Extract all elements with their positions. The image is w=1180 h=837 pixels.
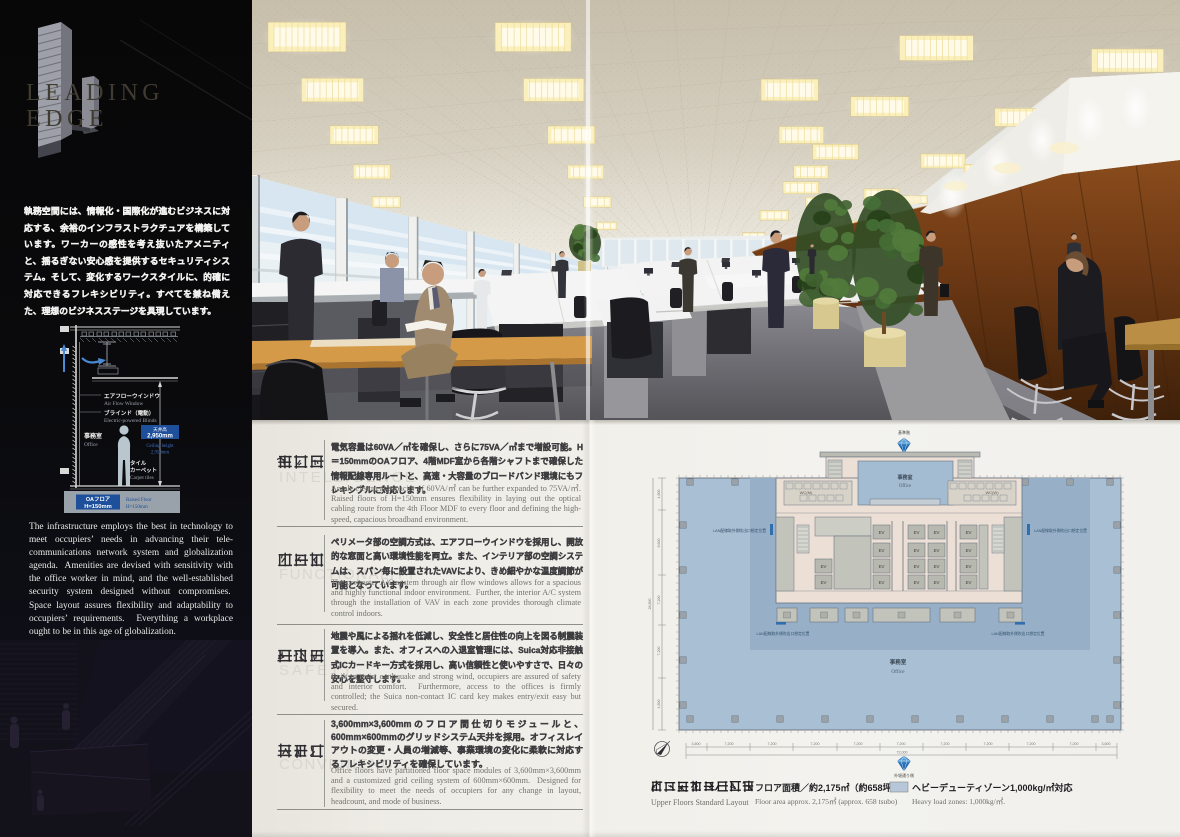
svg-text:7,200: 7,200 [657, 596, 661, 605]
svg-text:3,600: 3,600 [1102, 742, 1111, 746]
svg-text:Floor area approx. 2,175㎡ (app: Floor area approx. 2,175㎡ (approx. 658 t… [755, 797, 898, 806]
svg-text:7,200: 7,200 [811, 742, 820, 746]
svg-text:3,600: 3,600 [692, 742, 701, 746]
svg-text:7,200: 7,200 [725, 742, 734, 746]
svg-text:Office: Office [899, 484, 911, 489]
svg-text:EV: EV [879, 580, 885, 585]
svg-text:Electric-powered Blinds: Electric-powered Blinds [104, 418, 157, 424]
svg-text:事務室: 事務室 [897, 474, 912, 481]
svg-text:7,200: 7,200 [984, 742, 993, 746]
svg-text:Office: Office [891, 668, 905, 675]
svg-text:Heavy load zones: 1,000kg/㎡.: Heavy load zones: 1,000kg/㎡. [912, 797, 1005, 806]
svg-text:EV: EV [879, 530, 885, 535]
svg-text:EV: EV [914, 580, 920, 585]
svg-text:事務室: 事務室 [84, 432, 102, 440]
svg-text:カーペット: カーペット [130, 467, 157, 474]
svg-text:EV: EV [821, 580, 827, 585]
svg-text:9,600: 9,600 [657, 539, 661, 548]
svg-text:7,200: 7,200 [1070, 742, 1079, 746]
svg-text:事務室: 事務室 [890, 658, 907, 666]
svg-text:天井高: 天井高 [153, 426, 167, 433]
svg-text:Upper Floors Standard Layout: Upper Floors Standard Layout [651, 798, 749, 807]
svg-text:2,950mm: 2,950mm [151, 451, 170, 456]
svg-text:Air Flow Window: Air Flow Window [104, 401, 143, 407]
svg-text:7,200: 7,200 [854, 742, 863, 746]
svg-text:基準階: 基準階 [898, 429, 910, 435]
svg-text:外堀通り側: 外堀通り側 [894, 772, 914, 778]
svg-text:EV: EV [934, 580, 940, 585]
svg-text:H=150mm: H=150mm [84, 504, 112, 510]
svg-text:EV: EV [966, 548, 972, 553]
svg-text:EV: EV [934, 564, 940, 569]
svg-text:タイル: タイル [130, 459, 147, 467]
svg-text:7,200: 7,200 [897, 742, 906, 746]
svg-text:7,200: 7,200 [657, 647, 661, 656]
svg-text:EV: EV [914, 564, 920, 569]
svg-text:EV: EV [966, 564, 972, 569]
svg-text:LAN配線取外側吹出口想定位置: LAN配線取外側吹出口想定位置 [713, 528, 766, 533]
svg-text:4,800: 4,800 [657, 490, 661, 499]
svg-text:EV: EV [966, 530, 972, 535]
svg-text:7,200: 7,200 [1027, 742, 1036, 746]
svg-text:EV: EV [879, 548, 885, 553]
svg-text:LAN配線取外側吹出口想定位置: LAN配線取外側吹出口想定位置 [757, 631, 810, 636]
svg-text:EV: EV [821, 564, 827, 569]
svg-text:H=150mm: H=150mm [126, 505, 148, 510]
svg-text:EV: EV [934, 530, 940, 535]
svg-text:Office: Office [84, 441, 98, 448]
svg-text:Ceiling height: Ceiling height [146, 444, 174, 449]
svg-text:28,800: 28,800 [648, 599, 652, 610]
svg-text:LAN配線取外側吹出口想定位置: LAN配線取外側吹出口想定位置 [992, 631, 1045, 636]
svg-text:EV: EV [914, 530, 920, 535]
svg-text:2,950mm: 2,950mm [147, 434, 173, 440]
svg-text:Carpet tiles: Carpet tiles [130, 475, 154, 481]
svg-text:7,200: 7,200 [941, 742, 950, 746]
svg-text:エアフローウインドウ: エアフローウインドウ [104, 392, 160, 400]
svg-text:EV: EV [879, 564, 885, 569]
svg-text:EV: EV [914, 548, 920, 553]
svg-text:フロア面積／約2,175㎡（約658坪）: フロア面積／約2,175㎡（約658坪） [755, 782, 901, 793]
svg-text:EV: EV [934, 548, 940, 553]
svg-text:72,000: 72,000 [897, 751, 908, 755]
svg-text:Raised Floor: Raised Floor [126, 498, 152, 503]
svg-text:WC(W): WC(W) [985, 490, 999, 495]
svg-text:OAフロア: OAフロア [86, 496, 111, 503]
svg-text:ブラインド（電動）: ブラインド（電動） [104, 409, 154, 417]
svg-text:7,200: 7,200 [768, 742, 777, 746]
svg-text:ヘビーデューティゾーン1,000kg/㎡対応: ヘビーデューティゾーン1,000kg/㎡対応 [912, 782, 1073, 793]
svg-text:LAN配線取外側吹出口想定位置: LAN配線取外側吹出口想定位置 [1034, 528, 1087, 533]
svg-text:WC(M): WC(M) [800, 490, 813, 495]
svg-text:4,800: 4,800 [657, 700, 661, 709]
svg-text:EV: EV [966, 580, 972, 585]
